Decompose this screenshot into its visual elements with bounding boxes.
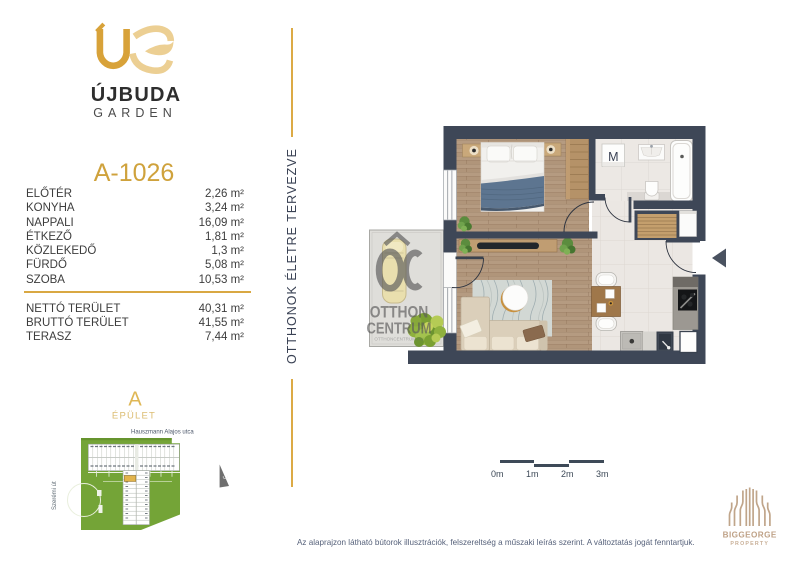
svg-text:CENTRUM: CENTRUM xyxy=(366,321,431,338)
svg-text:Szerémi út: Szerémi út xyxy=(52,481,58,510)
svg-text:M: M xyxy=(608,150,618,164)
svg-text:PROPERTY: PROPERTY xyxy=(730,541,769,547)
svg-text:ÉPÜLET: ÉPÜLET xyxy=(112,411,156,422)
svg-text:OTTHONCENTRUM.HU: OTTHONCENTRUM.HU xyxy=(374,337,423,342)
svg-text:BIGGEORGE: BIGGEORGE xyxy=(723,531,777,540)
svg-text:A: A xyxy=(128,389,142,411)
svg-text:OTTHON: OTTHON xyxy=(370,303,428,321)
svg-text:Hauszmann Alajos utca: Hauszmann Alajos utca xyxy=(131,430,194,436)
